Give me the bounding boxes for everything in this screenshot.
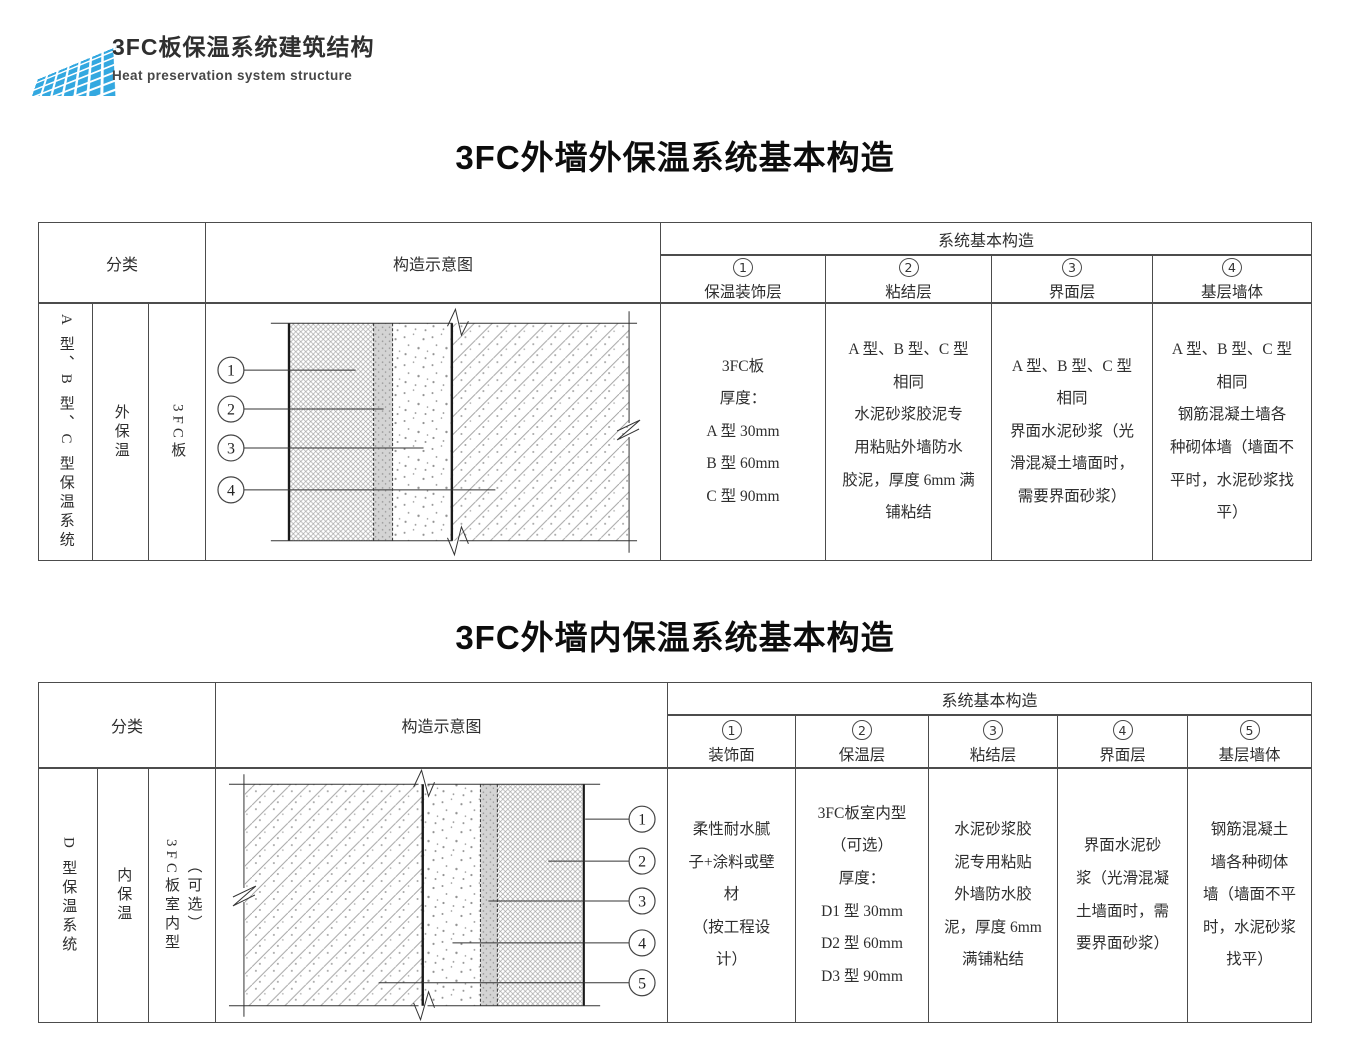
svg-text:5: 5 [638, 975, 646, 992]
column-label: 保温层 [839, 743, 886, 765]
column-header-base-wall: 5 基层墙体 [1188, 716, 1312, 769]
page: { "brand": { "logo_color": "#33a8e0", "t… [0, 0, 1350, 1047]
callout-1: 1 [629, 806, 655, 832]
category-cell: A 型、B 型、C 型保温系统 [39, 304, 93, 561]
svg-text:4: 4 [227, 482, 235, 499]
svg-text:2: 2 [227, 401, 235, 418]
category-label: D 型保温系统 [60, 837, 77, 955]
cell-insulation-decorative: 3FC板 厚度： A 型 30mm B 型 60mm C 型 90mm [661, 304, 826, 561]
cell-interface: 界面水泥砂 浆（光滑混凝 土墙面时，需 要界面砂浆） [1058, 769, 1188, 1023]
svg-text:3: 3 [227, 440, 235, 457]
header-system: 系统基本构造 [668, 683, 1312, 716]
column-header-interface: 4 界面层 [1058, 716, 1188, 769]
cell-insulation: 3FC板室内型 （可选） 厚度： D1 型 30mm D2 型 60mm D3 … [796, 769, 929, 1023]
board-label: 3FC板 [169, 404, 186, 461]
company-logo [0, 0, 116, 96]
callout-1: 1 [218, 357, 244, 383]
category-cell: D 型保温系统 [39, 769, 98, 1023]
circled-number-icon: 3 [983, 720, 1003, 740]
header-classification: 分类 [39, 683, 216, 769]
svg-text:3: 3 [638, 893, 646, 910]
circled-number-icon: 1 [722, 720, 742, 740]
brand-block: 3FC板保温系统建筑结构 Heat preservation system st… [112, 28, 374, 83]
position-label: 内保温 [115, 867, 132, 924]
column-header-base-wall: 4 基层墙体 [1153, 256, 1312, 304]
layer-interface [393, 323, 452, 541]
column-label: 界面层 [1099, 743, 1146, 765]
layer-adhesive [480, 784, 497, 1006]
column-header-insulation: 2 保温层 [796, 716, 929, 769]
column-label: 装饰面 [708, 743, 755, 765]
header-diagram: 构造示意图 [206, 223, 661, 304]
section2-title: 3FC外墙内保温系统基本构造 [0, 611, 1350, 659]
column-label: 保温装饰层 [704, 280, 782, 302]
column-header-decorative-face: 1 装饰面 [668, 716, 796, 769]
callout-2: 2 [218, 396, 244, 422]
category-label: A 型、B 型、C 型保温系统 [57, 314, 74, 550]
brand-subtitle: Heat preservation system structure [112, 68, 374, 83]
header-system: 系统基本构造 [661, 223, 1312, 256]
cell-decorative-face: 柔性耐水腻 子+涂料或壁 材 （按工程设 计） [668, 769, 796, 1023]
callout-3: 3 [218, 434, 244, 460]
circled-number-icon: 1 [733, 258, 753, 277]
diagram-cell-external: 1 2 3 4 [206, 304, 661, 561]
board-label: 3FC板室内型 [163, 839, 180, 953]
callout-4: 4 [629, 929, 655, 955]
layer-base-wall [245, 784, 423, 1006]
layer-base-wall [452, 323, 629, 541]
cell-bonding: A 型、B 型、C 型 相同 水泥砂浆胶泥专 用粘贴外墙防水 胶泥，厚度 6mm… [826, 304, 992, 561]
position-label: 外保温 [112, 404, 129, 461]
svg-text:4: 4 [638, 935, 646, 952]
column-header-insulation-decorative: 1 保温装饰层 [661, 256, 826, 304]
layer-interface [424, 784, 481, 1006]
callout-4: 4 [218, 476, 244, 502]
layer-insulation-board [497, 784, 582, 1006]
external-insulation-table: 分类 构造示意图 系统基本构造 1 保温装饰层 2 粘结层 3 界面层 4 基层… [38, 222, 1312, 561]
column-label: 粘结层 [885, 280, 932, 302]
board-cell: 3FC板室内型 （可选） [149, 769, 216, 1023]
wall-section-diagram-internal: 1 2 3 4 5 [216, 769, 667, 1023]
callout-2: 2 [629, 848, 655, 874]
layer-insulation-board [290, 323, 374, 541]
logo-grid [6, 37, 116, 96]
circled-number-icon: 5 [1240, 720, 1260, 740]
column-header-bonding: 3 粘结层 [929, 716, 1058, 769]
circled-number-icon: 2 [852, 720, 872, 740]
cell-base-wall: A 型、B 型、C 型 相同 钢筋混凝土墙各 种砌体墙（墙面不 平时，水泥砂浆找… [1153, 304, 1312, 561]
column-label: 界面层 [1049, 280, 1096, 302]
header-diagram: 构造示意图 [216, 683, 668, 769]
svg-text:2: 2 [638, 853, 646, 870]
brand-title: 3FC板保温系统建筑结构 [112, 28, 374, 62]
section1-title: 3FC外墙外保温系统基本构造 [0, 131, 1350, 179]
diagram-cell-internal: 1 2 3 4 5 [216, 769, 668, 1023]
callout-5: 5 [629, 969, 655, 995]
column-label: 粘结层 [970, 743, 1017, 765]
layer-adhesive [374, 323, 393, 541]
internal-insulation-table: 分类 构造示意图 系统基本构造 1 装饰面 2 保温层 3 粘结层 4 界面层 … [38, 682, 1312, 1023]
column-label: 基层墙体 [1201, 280, 1263, 302]
circled-number-icon: 4 [1222, 258, 1242, 277]
header-classification: 分类 [39, 223, 206, 304]
board-note: （可选） [185, 858, 202, 934]
circled-number-icon: 2 [899, 258, 919, 277]
circled-number-icon: 3 [1062, 258, 1082, 277]
board-cell: 3FC板 [149, 304, 206, 561]
column-header-bonding: 2 粘结层 [826, 256, 992, 304]
cell-base-wall: 钢筋混凝土 墙各种砌体 墙（墙面不平 时，水泥砂浆 找平） [1188, 769, 1312, 1023]
cell-interface: A 型、B 型、C 型 相同 界面水泥砂浆（光 滑混凝土墙面时， 需要界面砂浆） [992, 304, 1153, 561]
position-cell: 外保温 [93, 304, 149, 561]
column-header-interface: 3 界面层 [992, 256, 1153, 304]
svg-text:1: 1 [638, 811, 646, 828]
column-label: 基层墙体 [1218, 743, 1280, 765]
wall-section-diagram-external: 1 2 3 4 [206, 304, 660, 561]
circled-number-icon: 4 [1113, 720, 1133, 740]
callout-3: 3 [629, 888, 655, 914]
cell-bonding: 水泥砂浆胶 泥专用粘贴 外墙防水胶 泥，厚度 6mm 满铺粘结 [929, 769, 1058, 1023]
svg-text:1: 1 [227, 362, 235, 379]
position-cell: 内保温 [98, 769, 149, 1023]
